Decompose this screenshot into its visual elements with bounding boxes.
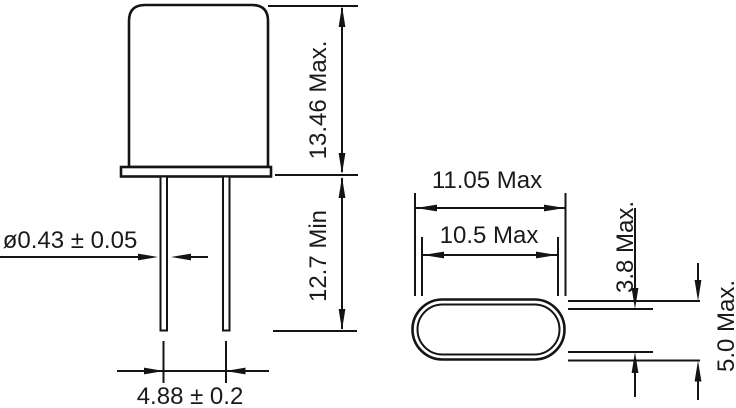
- arrowhead-down-icon: [339, 153, 346, 174]
- lead-spacing-label: 4.88 ± 0.2: [137, 383, 244, 408]
- lead-diameter-label: ø0.43 ± 0.05: [3, 227, 138, 254]
- arrowhead-right-icon: [544, 205, 565, 212]
- top-view: 11.05 Max 10.5 Max 3.8: [413, 167, 736, 400]
- inner-thickness-label: 3.8 Max.: [612, 201, 639, 293]
- inner-width-label: 10.5 Max: [440, 222, 539, 249]
- dimension-body-height: 13.46 Max.: [268, 6, 358, 175]
- drawing-canvas: 13.46 Max. 12.7 Min ø0.43 ± 0.05: [0, 0, 736, 408]
- arrowhead-right-icon: [138, 254, 158, 261]
- arrowhead-up-icon: [339, 177, 346, 198]
- dimension-lead-spacing: 4.88 ± 0.2: [117, 341, 269, 408]
- dimension-inner-width: 10.5 Max: [422, 222, 558, 296]
- outer-thickness-label: 5.0 Max.: [713, 280, 736, 372]
- dimension-inner-thickness: 3.8 Max.: [612, 201, 639, 397]
- lead-length-label: 12.7 Min: [305, 210, 332, 302]
- dimension-lead-length: 12.7 Min: [273, 177, 357, 331]
- lead-right-outline: [223, 177, 230, 331]
- arrowhead-right-icon: [144, 368, 164, 375]
- arrowhead-left-icon: [226, 368, 246, 375]
- arrowhead-right-icon: [536, 252, 557, 259]
- arrowhead-down-icon: [339, 309, 346, 330]
- crystal-package-drawing: 13.46 Max. 12.7 Min ø0.43 ± 0.05: [0, 0, 736, 408]
- arrowhead-left-icon: [423, 252, 444, 259]
- side-view: 13.46 Max. 12.7 Min ø0.43 ± 0.05: [0, 5, 358, 408]
- can-body-outline: [129, 5, 268, 167]
- arrowhead-up-icon: [632, 352, 639, 373]
- lead-left-outline: [161, 177, 168, 331]
- dimension-outer-thickness: 5.0 Max.: [695, 263, 736, 400]
- arrowhead-left-icon: [416, 205, 437, 212]
- outer-width-label: 11.05 Max: [432, 167, 542, 194]
- arrowhead-left-icon: [171, 254, 191, 261]
- arrowhead-down-icon: [695, 280, 702, 301]
- arrowhead-up-icon: [339, 6, 346, 27]
- arrowhead-up-icon: [695, 361, 702, 382]
- body-height-label: 13.46 Max.: [305, 41, 332, 160]
- can-top-inner-outline: [418, 305, 560, 355]
- base-flange-outline: [121, 167, 271, 177]
- dimension-lead-diameter: ø0.43 ± 0.05: [0, 227, 208, 260]
